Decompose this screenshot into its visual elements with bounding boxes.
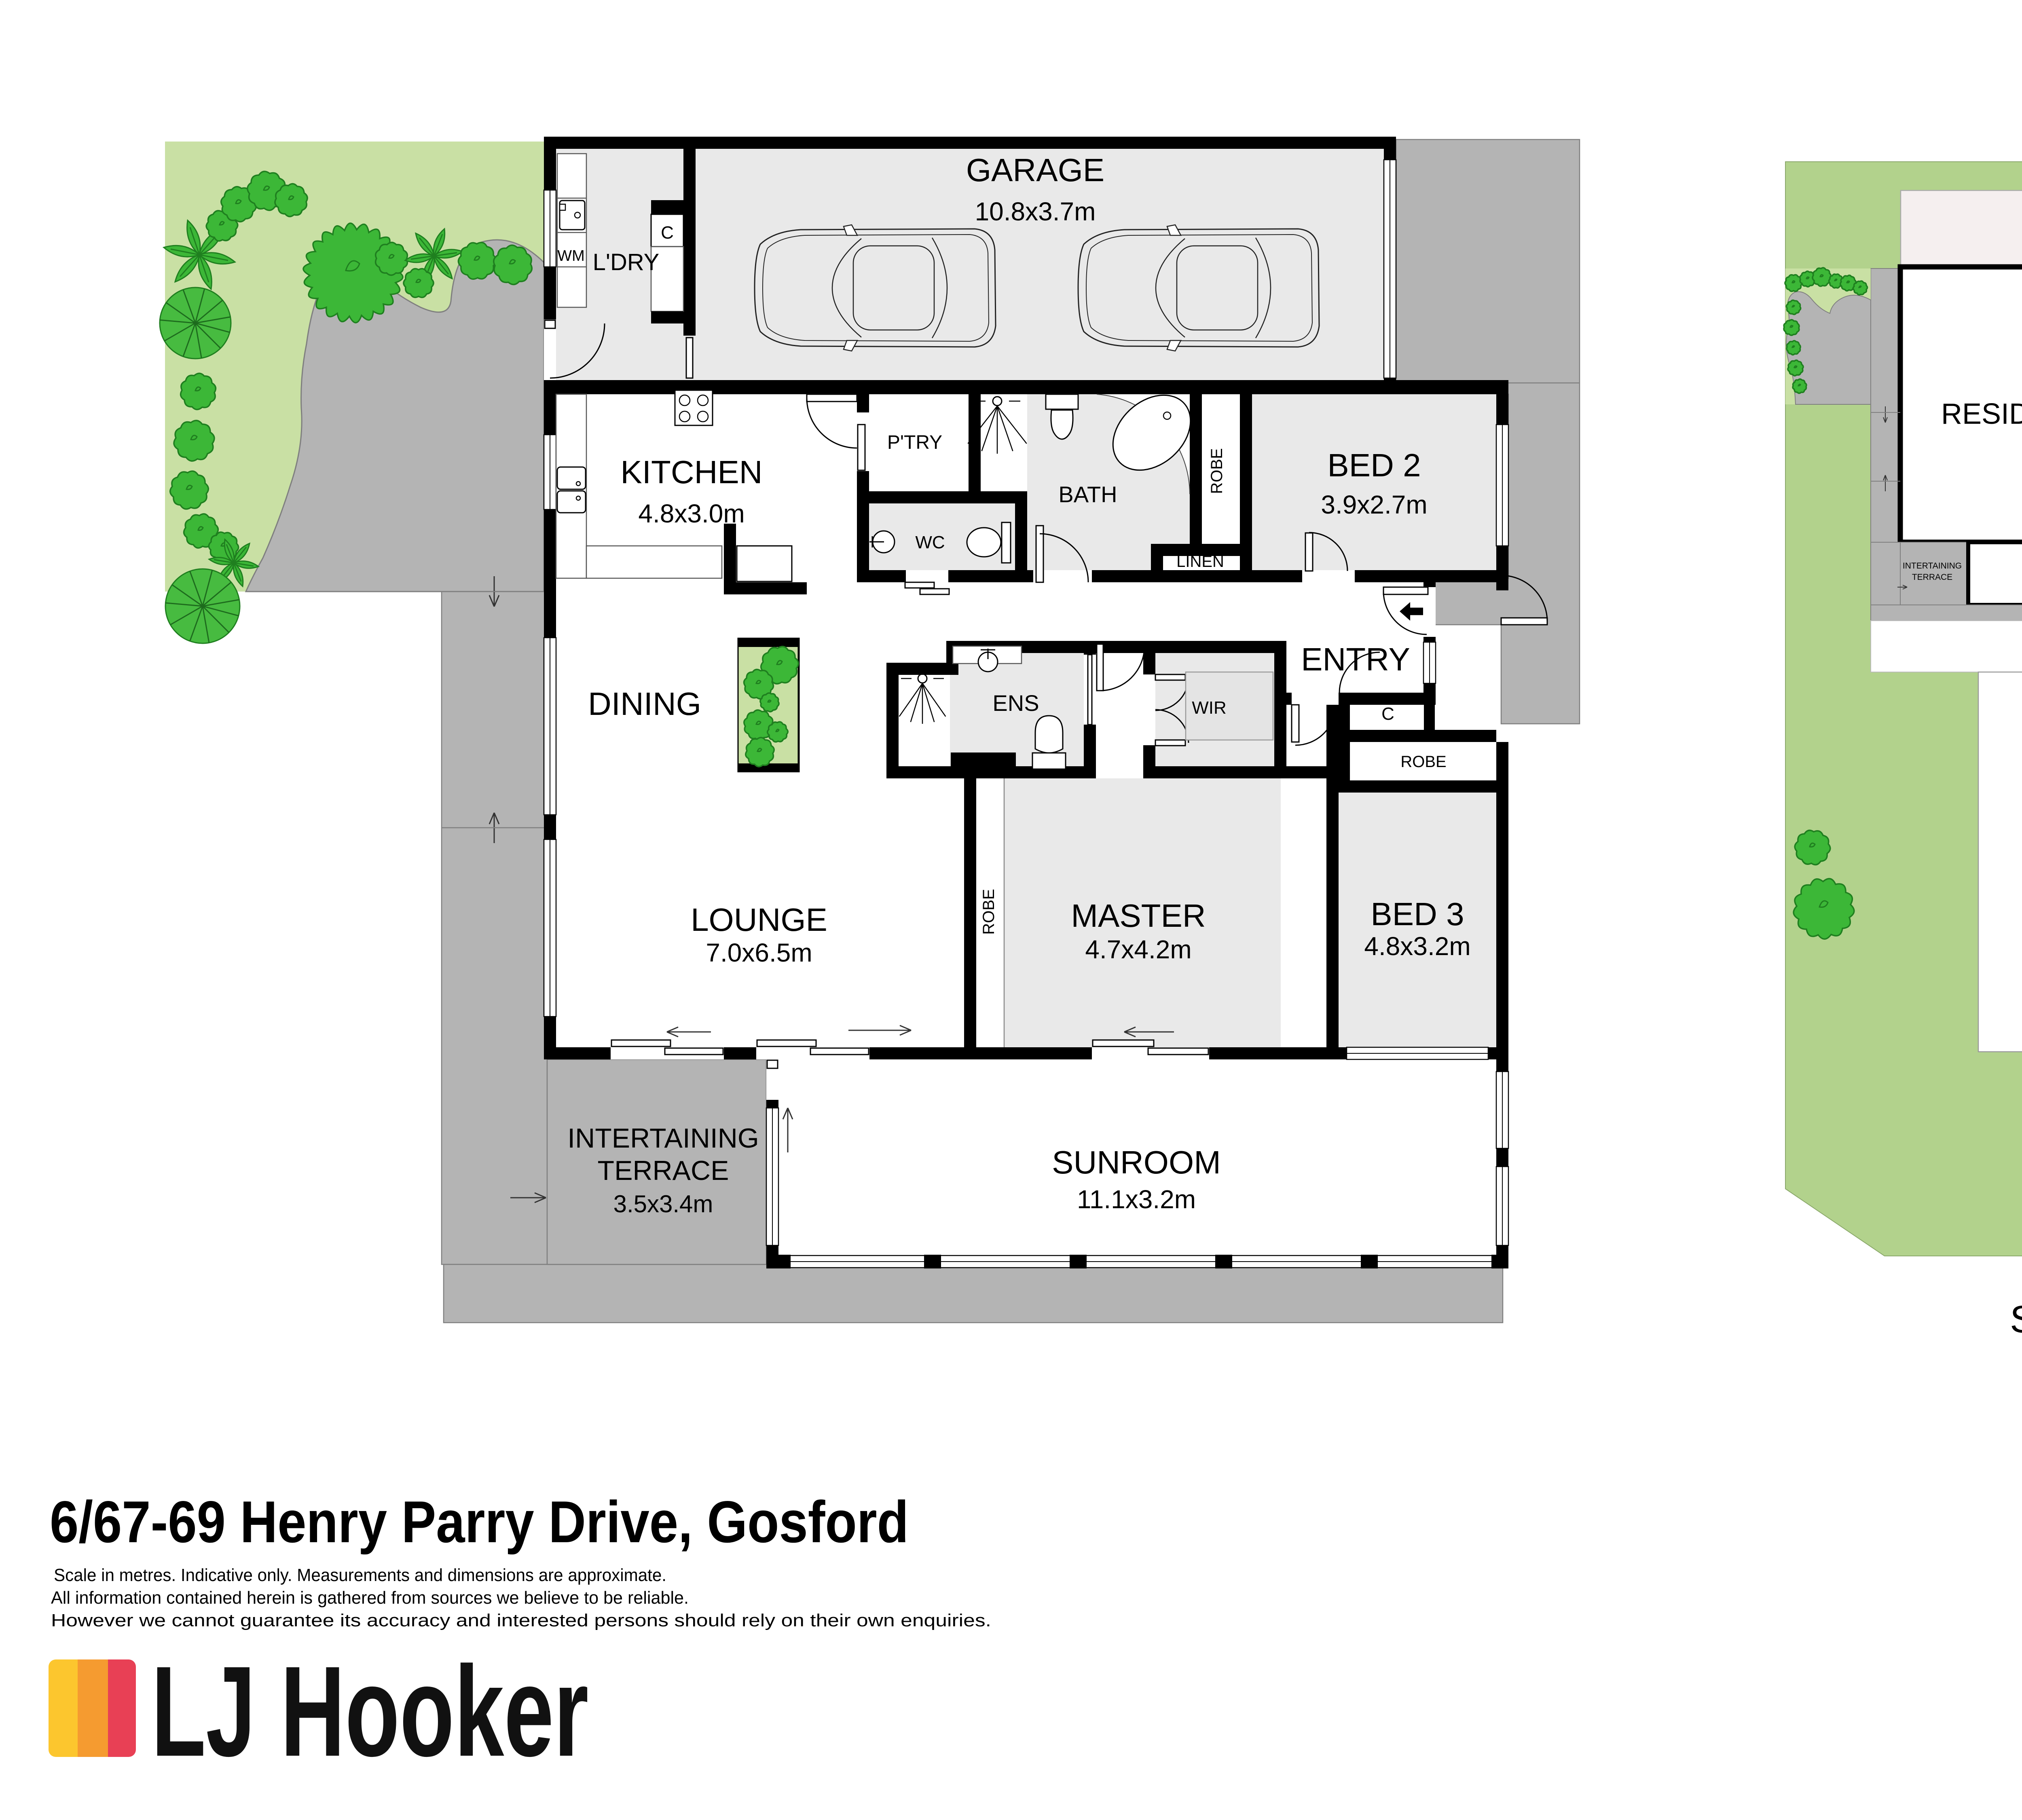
svg-text:P'TRY: P'TRY: [887, 432, 942, 453]
svg-text:11.1x3.2m: 11.1x3.2m: [1077, 1185, 1196, 1214]
svg-text:All information contained here: All information contained herein is gath…: [51, 1588, 689, 1608]
svg-text:GARAGE: GARAGE: [966, 152, 1104, 188]
svg-text:INTERTAINING: INTERTAINING: [567, 1123, 759, 1154]
svg-text:WIR: WIR: [1192, 698, 1227, 718]
svg-text:MASTER: MASTER: [1071, 898, 1206, 934]
svg-text:C: C: [1381, 704, 1394, 724]
svg-text:Scale in metres. Indicative on: Scale in metres. Indicative only. Measur…: [54, 1565, 666, 1585]
svg-text:4.8x3.2m: 4.8x3.2m: [1364, 932, 1470, 961]
svg-text:3.9x2.7m: 3.9x2.7m: [1321, 490, 1427, 519]
svg-text:BATH: BATH: [1058, 482, 1117, 507]
svg-text:ROBE: ROBE: [1208, 448, 1226, 494]
svg-text:6/67-69 Henry Parry Drive, Gos: 6/67-69 Henry Parry Drive, Gosford: [50, 1489, 909, 1555]
svg-text:TERRACE: TERRACE: [598, 1155, 729, 1186]
svg-text:ENS: ENS: [992, 690, 1039, 716]
svg-text:ROBE: ROBE: [980, 889, 998, 934]
svg-text:DINING: DINING: [588, 686, 701, 722]
svg-text:TERRACE: TERRACE: [1912, 573, 1952, 582]
svg-text:ENTRY: ENTRY: [1301, 641, 1410, 677]
svg-text:BED 3: BED 3: [1371, 896, 1464, 932]
svg-text:4.8x3.0m: 4.8x3.0m: [638, 499, 745, 528]
svg-text:4.7x4.2m: 4.7x4.2m: [1085, 935, 1191, 964]
svg-text:LJ Hooker: LJ Hooker: [151, 1640, 588, 1783]
svg-text:7.0x6.5m: 7.0x6.5m: [706, 938, 812, 967]
svg-text:SUNROOM: SUNROOM: [1052, 1144, 1221, 1180]
svg-text:KITCHEN: KITCHEN: [620, 454, 762, 490]
svg-text:C: C: [661, 223, 674, 243]
svg-text:WM: WM: [557, 247, 585, 264]
svg-text:WC: WC: [915, 533, 945, 552]
svg-text:L'DRY: L'DRY: [593, 249, 660, 275]
svg-text:LOUNGE: LOUNGE: [691, 902, 827, 938]
svg-text:RESIDENCE: RESIDENCE: [1941, 398, 2022, 430]
svg-text:LINEN: LINEN: [1176, 553, 1224, 571]
svg-text:10.8x3.7m: 10.8x3.7m: [975, 197, 1096, 226]
svg-text:ROBE: ROBE: [1400, 753, 1446, 771]
svg-text:However we cannot guarantee it: However we cannot guarantee its accuracy…: [51, 1611, 991, 1630]
svg-text:SITE PLAN: SITE PLAN: [2010, 1298, 2022, 1341]
svg-text:INTERTAINING: INTERTAINING: [1903, 561, 1962, 571]
svg-text:3.5x3.4m: 3.5x3.4m: [613, 1190, 713, 1218]
svg-text:BED 2: BED 2: [1327, 447, 1421, 483]
